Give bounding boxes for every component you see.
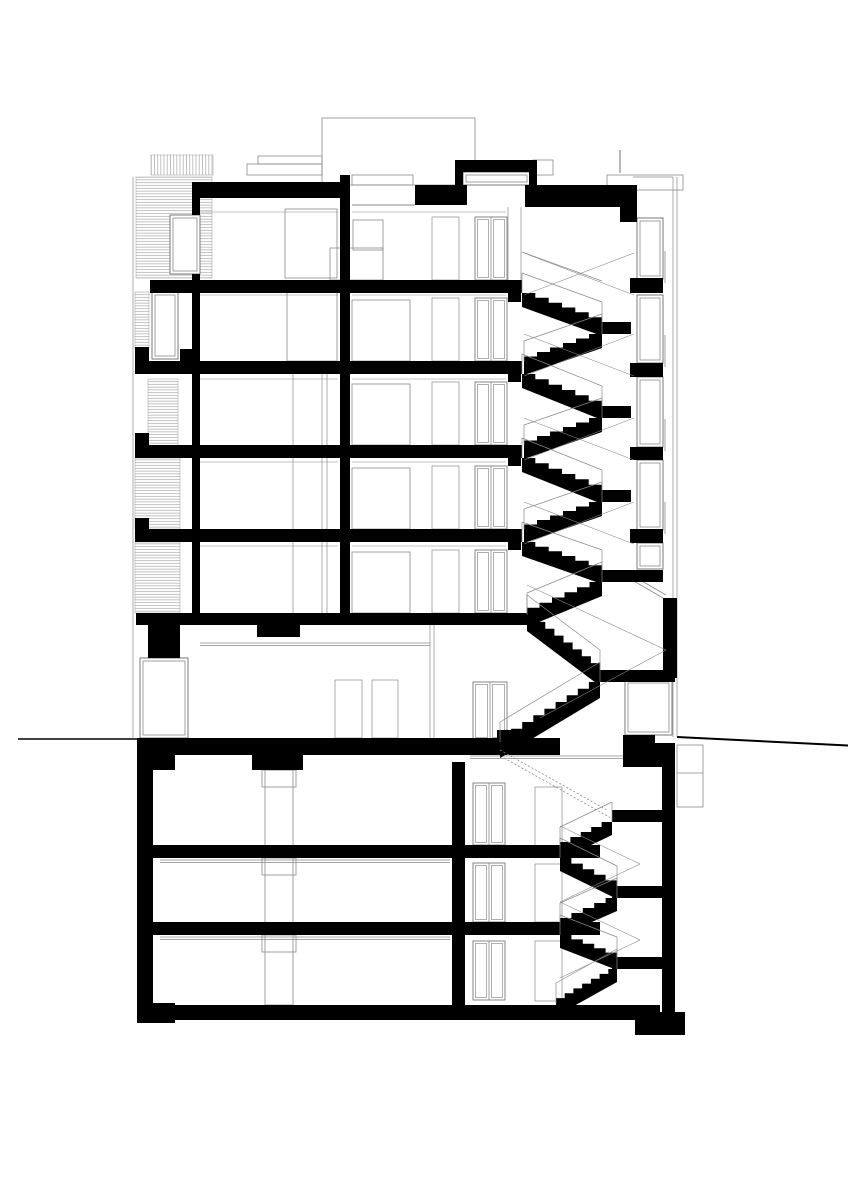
cut-wall-or-slab (135, 347, 149, 374)
outline-rect (262, 858, 296, 875)
window-outer-frame (637, 377, 663, 447)
window-outer-frame (140, 658, 188, 738)
double-door (475, 466, 507, 529)
cut-wall-or-slab (630, 447, 663, 460)
stair-flight (524, 502, 602, 543)
cut-wall-or-slab (143, 529, 522, 542)
stair-landing (598, 406, 631, 418)
window-outer-frame (625, 680, 672, 735)
cut-wall-or-slab (415, 185, 467, 205)
cut-wall-or-slab (137, 1005, 660, 1020)
stair-flight (527, 582, 602, 627)
window (463, 172, 530, 185)
door-leaf-outline (335, 680, 362, 738)
cut-wall-or-slab (662, 755, 675, 1012)
window-outer-frame (637, 295, 663, 363)
outline-rect (352, 552, 410, 613)
hatch-panel (148, 379, 178, 446)
cut-wall-or-slab (455, 160, 537, 172)
window (637, 295, 663, 363)
double-door (475, 550, 507, 613)
double-door (473, 783, 505, 845)
window-outer-frame (152, 292, 178, 359)
cut-wall-or-slab (635, 1012, 685, 1035)
cut-wall-or-slab (180, 349, 196, 374)
detail-line (632, 580, 663, 598)
cut-wall-or-slab (663, 598, 677, 678)
cut-wall-or-slab (630, 363, 663, 377)
stair-landing (612, 886, 662, 898)
stair-flight (522, 293, 602, 336)
door-leaf-outline (535, 941, 562, 1001)
stair-flight (522, 542, 602, 584)
stair-landing (600, 570, 663, 582)
outline-rect (262, 935, 296, 952)
cut-wall-or-slab (136, 613, 527, 625)
cut-wall-or-slab (630, 529, 663, 543)
window-outer-frame (637, 460, 663, 530)
stair-landing (612, 810, 662, 822)
outline-rect (258, 156, 322, 164)
door-leaf-outline (432, 298, 459, 361)
outline-rect (352, 175, 413, 185)
window (152, 292, 178, 359)
cut-wall-or-slab (143, 445, 522, 458)
double-door (475, 298, 507, 361)
cut-wall-or-slab (192, 274, 200, 613)
cut-wall-or-slab (148, 625, 180, 658)
double-door (473, 941, 505, 1000)
cut-wall-or-slab (192, 198, 200, 215)
cut-wall-or-slab (252, 755, 303, 770)
outline-rect (353, 220, 383, 250)
ground-line (677, 737, 848, 746)
outline-rect (285, 209, 337, 278)
outline-rect (352, 468, 410, 529)
stair-flight (560, 858, 617, 899)
window (170, 215, 200, 274)
cut-wall-or-slab (620, 207, 637, 222)
cut-wall-or-slab (455, 172, 463, 185)
double-door (475, 382, 507, 445)
door-leaf-outline (432, 217, 459, 280)
outline-rect (677, 745, 703, 807)
outline-rect (330, 248, 383, 280)
detail-line (522, 252, 602, 281)
door-leaf-outline (535, 787, 562, 847)
roof-railing-hatch (151, 155, 213, 175)
stair-flight (524, 418, 602, 459)
window (637, 377, 663, 447)
stair-landing (598, 322, 631, 334)
double-door (473, 863, 505, 922)
hatch-panel (135, 542, 180, 613)
cut-wall-or-slab (135, 518, 149, 542)
cut-wall-or-slab (153, 845, 600, 858)
hatch-panel (135, 292, 149, 349)
outline-rect (352, 384, 410, 445)
door-leaf-outline (432, 382, 459, 445)
cut-wall-or-slab (137, 738, 560, 755)
door-leaf-outline (535, 864, 562, 922)
double-door (475, 217, 507, 280)
door-leaf-outline (432, 466, 459, 529)
door-leaf-outline (432, 550, 459, 613)
cut-wall-or-slab (525, 185, 637, 207)
outline-rect (247, 164, 322, 175)
window (637, 543, 663, 569)
cut-wall-or-slab (529, 172, 537, 185)
stair-landing (598, 490, 631, 502)
outline-rect (262, 770, 296, 787)
outline-rect (265, 770, 293, 1005)
window-outer-frame (637, 218, 663, 279)
cut-wall-or-slab (137, 755, 153, 1005)
window (637, 460, 663, 530)
cut-wall-or-slab (452, 762, 465, 1005)
stair-flight (527, 615, 600, 686)
building-section-drawing (0, 0, 848, 1200)
door-leaf-outline (372, 680, 398, 738)
cut-wall-or-slab (340, 198, 350, 613)
window-outer-frame (637, 543, 663, 569)
cut-wall-or-slab (192, 182, 347, 198)
window-outer-frame (463, 172, 530, 185)
outline-rect (287, 292, 337, 361)
stair-flight (524, 334, 602, 375)
cut-wall-or-slab (150, 280, 522, 293)
window (625, 680, 672, 735)
cut-wall-or-slab (143, 361, 522, 374)
cut-wall-or-slab (257, 625, 300, 637)
window-outer-frame (170, 215, 200, 274)
drawing-sheet (0, 0, 848, 1200)
stair-landing (612, 957, 662, 969)
cut-wall-or-slab (135, 433, 149, 458)
cut-wall-or-slab (630, 278, 663, 293)
window (637, 218, 663, 279)
cut-wall-or-slab (153, 922, 600, 935)
outline-rect (352, 300, 410, 361)
window (140, 658, 188, 738)
